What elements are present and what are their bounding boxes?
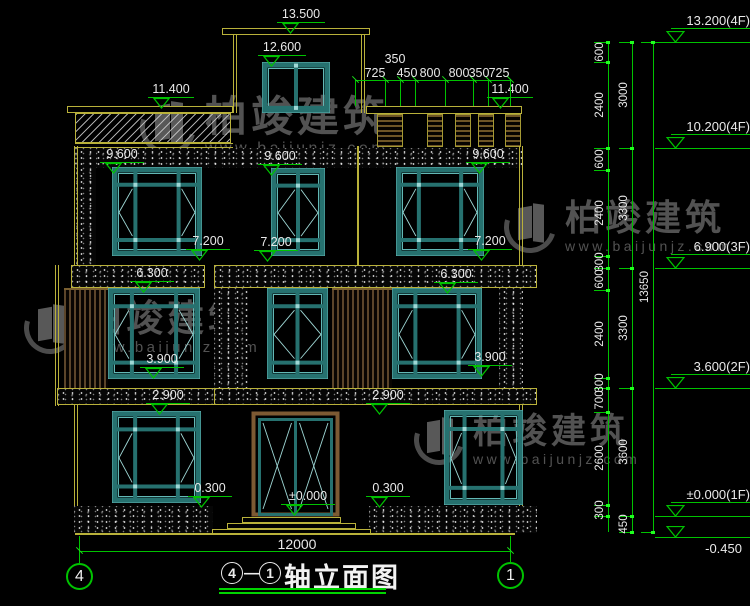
title-underline: [219, 592, 386, 594]
balcony-slat-railing-left: [64, 288, 108, 388]
level-triangle-icon: [666, 377, 685, 389]
elevation-marker: 0.300: [188, 482, 232, 497]
axis-bubble-1: 1: [497, 562, 524, 589]
top-dim-text: 800: [414, 66, 446, 80]
elevation-marker-value: 0.300: [366, 482, 410, 495]
level-triangle-icon: [193, 497, 210, 508]
level-triangle-icon: [263, 56, 280, 67]
pergola-beam: [377, 114, 403, 147]
elevation-marker-value: 0.300: [188, 482, 232, 495]
dim-tick: [651, 531, 655, 534]
level-label: 10.200(4F): [662, 119, 750, 134]
dim-tick: [606, 289, 610, 292]
plinth-band-left: [74, 506, 213, 533]
dim-tick: [630, 147, 634, 150]
pergola-beam: [455, 114, 471, 147]
level-triangle-icon: [371, 497, 388, 508]
dim-text-vertical: 2600: [594, 436, 606, 480]
elevation-marker-value: 6.300: [130, 267, 174, 280]
dim-tick: [630, 267, 634, 270]
level-triangle-icon: [286, 505, 303, 516]
dim-text-vertical: 3000: [618, 73, 630, 117]
elevation-marker-value: 9.600: [100, 148, 144, 161]
window-glazing: [267, 288, 328, 379]
wall-pier-3f-left: [76, 148, 96, 268]
level-triangle-icon: [153, 98, 170, 109]
dim-tick: [606, 515, 610, 518]
dim-tick: [606, 387, 610, 390]
elevation-marker: ±0.000: [281, 490, 335, 505]
parapet-hatch-band: [75, 113, 231, 143]
level-underline: [671, 134, 750, 135]
dim-tick: [606, 41, 610, 44]
level-triangle-icon: [259, 251, 276, 262]
dim-extension-line: [415, 81, 416, 106]
elevation-marker-value: ±0.000: [281, 490, 335, 503]
dim-text-vertical: 450: [618, 502, 630, 546]
level-triangle-icon: [492, 98, 509, 109]
title-underline: [219, 588, 386, 590]
level-triangle-icon: [471, 163, 488, 174]
wall-edge-left-3f: [74, 146, 78, 268]
elevation-marker: 7.200: [468, 235, 512, 250]
elevation-marker: 3.900: [140, 353, 184, 368]
dim-text-vertical: 2400: [594, 191, 606, 235]
level-label: 3.600(2F): [662, 359, 750, 374]
dim-chain-line: [608, 42, 609, 532]
elevation-marker: 11.400: [148, 83, 194, 98]
level-triangle-icon: [473, 366, 490, 377]
elevation-marker: 6.300: [130, 267, 174, 282]
level-triangle-icon: [282, 23, 299, 34]
elevation-marker: 7.200: [186, 235, 230, 250]
window-1f-right: [444, 410, 523, 505]
dim-tick: [606, 267, 610, 270]
dim-text-vertical: 300: [594, 488, 606, 532]
ground-line: [75, 533, 515, 535]
elevation-marker-value: 2.900: [366, 389, 410, 402]
dim-tick: [606, 61, 610, 64]
balcony-wall-left: [55, 265, 59, 406]
level-triangle-icon: [666, 137, 685, 149]
wall-pier-2f-left: [214, 288, 248, 388]
level-triangle: [666, 30, 685, 48]
level-triangle: [666, 376, 685, 394]
level-triangle: [666, 256, 685, 274]
dim-text-vertical: 600: [594, 137, 606, 181]
level-triangle-icon: [191, 250, 208, 261]
level-triangle-icon: [105, 163, 122, 174]
watermark-brand: 柏竣建筑: [565, 200, 732, 236]
dim-extension-line: [473, 81, 474, 106]
dim-text-vertical: 600: [594, 30, 606, 74]
elevation-marker: 7.200: [254, 236, 298, 251]
dim-text-vertical: 3600: [618, 430, 630, 474]
wall-pier-2f-right: [499, 288, 523, 388]
level-triangle-icon: [371, 404, 388, 415]
dim-tick: [606, 255, 610, 258]
elevation-marker-value: 3.900: [140, 353, 184, 366]
dim-extension-line: [385, 81, 386, 106]
elevation-marker-value: 11.400: [148, 83, 194, 96]
level-triangle: [666, 504, 685, 522]
dim-text-vertical: 2400: [594, 312, 606, 356]
dim-tick: [606, 169, 610, 172]
level-triangle-icon: [666, 526, 685, 538]
elevation-marker: 9.600: [466, 148, 510, 163]
pergola-beam: [478, 114, 494, 147]
elevation-marker-value: 6.300: [434, 268, 478, 281]
top-dim-text: 350: [379, 52, 411, 66]
elevation-marker: 12.600: [258, 41, 306, 56]
dim-text-vertical: 600: [594, 257, 606, 301]
level-triangle-icon: [263, 165, 280, 176]
title-axis-bubble-1: 1: [259, 562, 281, 584]
level-triangle-icon: [439, 283, 456, 294]
dim-extension-line: [488, 81, 489, 106]
elevation-marker-value: 2.900: [146, 389, 190, 402]
elevation-marker-value: 9.600: [466, 148, 510, 161]
elevation-marker-value: 7.200: [186, 235, 230, 248]
elevation-marker-value: 9.600: [258, 150, 302, 163]
level-triangle-icon: [666, 31, 685, 43]
dim-tick: [630, 387, 634, 390]
wall-line-mid-3f: [357, 146, 359, 268]
dim-text-vertical: 13650: [639, 265, 651, 309]
left-roof-slab: [67, 106, 233, 113]
floor-band-630-right: [214, 265, 537, 288]
dim-extension-line: [445, 81, 446, 106]
dim-tick: [630, 515, 634, 518]
level-triangle-icon: [666, 505, 685, 517]
elevation-marker-value: 7.200: [468, 235, 512, 248]
plinth-band-right: [369, 506, 537, 533]
cad-elevation-drawing: 柏竣建筑 www.baijunjz.com 柏竣建筑 www.baijunjz.…: [0, 0, 750, 606]
title-axis-bubble-4: 4: [221, 562, 243, 584]
dim-tick: [606, 147, 610, 150]
slat-screen-center: [332, 288, 392, 388]
window-glazing: [262, 62, 330, 113]
level-triangle: [666, 136, 685, 154]
top-dim-text: 725: [483, 66, 515, 80]
level-label: -0.450: [662, 541, 742, 556]
dim-tick: [606, 411, 610, 414]
dim-text-vertical: 700: [594, 378, 606, 422]
level-label: 13.200(4F): [662, 13, 750, 28]
bulkhead-wall-left: [233, 35, 237, 113]
wall-edge-left-1f: [74, 405, 78, 506]
dim-text-vertical: 2400: [594, 83, 606, 127]
axis-bubble-4: 4: [66, 563, 93, 590]
elevation-marker: 2.900: [146, 389, 190, 404]
dim-tick: [630, 41, 634, 44]
bulkhead-window: [262, 62, 330, 113]
top-dim-text: 725: [359, 66, 391, 80]
level-triangle-icon: [145, 368, 162, 379]
level-triangle-icon: [473, 250, 490, 261]
elevation-marker-value: 7.200: [254, 236, 298, 249]
elevation-marker: 6.300: [434, 268, 478, 283]
pergola-beam: [505, 114, 521, 147]
level-underline: [671, 28, 750, 29]
elevation-marker-value: 12.600: [258, 41, 306, 54]
dim-chain-line: [632, 42, 633, 532]
title-separator: —: [244, 565, 260, 583]
level-triangle-icon: [666, 257, 685, 269]
level-underline: [671, 502, 750, 503]
elevation-marker: 3.900: [468, 351, 512, 366]
dim-extension-line: [400, 81, 401, 106]
floor-band-290-left: [57, 388, 217, 405]
level-underline: [671, 254, 750, 255]
elevation-marker-value: 3.900: [468, 351, 512, 364]
elevation-marker: 9.600: [100, 148, 144, 163]
level-triangle-icon: [135, 282, 152, 293]
dim-tick: [606, 504, 610, 507]
level-underline: [671, 374, 750, 375]
dim-tick: [630, 531, 634, 534]
elevation-marker: 2.900: [366, 389, 410, 404]
elevation-marker-value: 13.500: [277, 8, 325, 21]
window-2f-middle: [267, 288, 328, 379]
overall-dim-text: 12000: [275, 536, 319, 552]
window-glazing: [444, 410, 523, 505]
level-label: ±0.000(1F): [662, 487, 750, 502]
elevation-marker: 0.300: [366, 482, 410, 497]
pergola-beam: [427, 114, 443, 147]
dim-text-vertical: 3300: [618, 186, 630, 230]
dim-extension-line: [355, 81, 356, 106]
dim-text-vertical: 3300: [618, 306, 630, 350]
elevation-marker: 13.500: [277, 8, 325, 23]
level-triangle-icon: [151, 404, 168, 415]
dim-chain-line: [653, 42, 654, 532]
elevation-marker: 9.600: [258, 150, 302, 165]
dim-tick: [606, 377, 610, 380]
dim-extension-line: [510, 81, 511, 106]
level-label: 6.900(3F): [662, 239, 750, 254]
